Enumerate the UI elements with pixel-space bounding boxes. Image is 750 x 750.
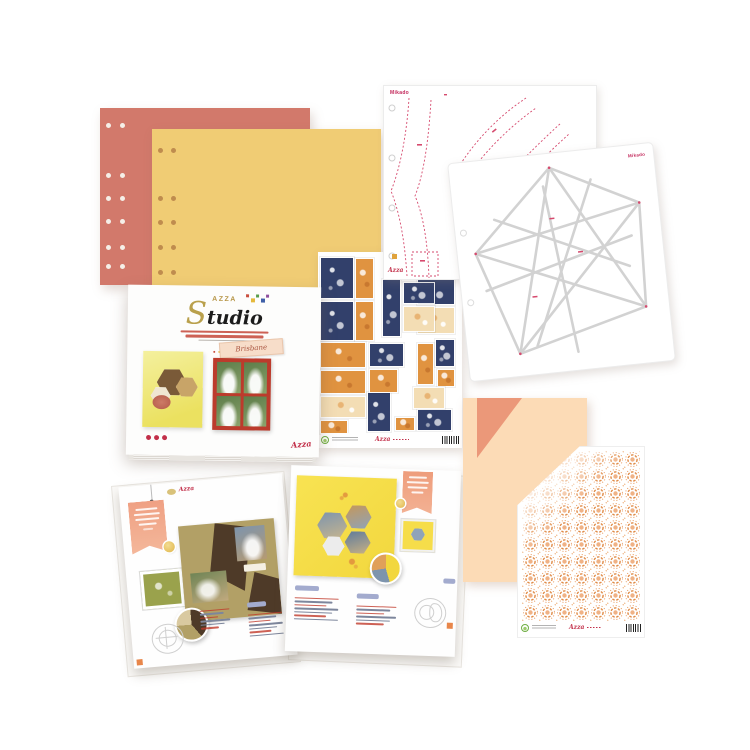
booklet-cover: AZZA Studio Brisbane Azza: [126, 285, 321, 458]
binder-hole: [158, 270, 163, 275]
list-line: [200, 612, 224, 616]
sticker: [418, 410, 451, 430]
sticker: [321, 343, 365, 367]
sticker: [368, 393, 390, 431]
page-corner-chip: [447, 623, 453, 629]
journaling-chip: [244, 563, 267, 572]
layout-photo: [190, 570, 228, 603]
page-title-script: Azza: [179, 485, 195, 493]
stencil-motif-drawing: [414, 597, 447, 628]
page-corner-chip: [136, 659, 143, 666]
photo-hexagon: [322, 536, 345, 556]
binder-hole: [106, 264, 111, 269]
list-chip: [247, 601, 266, 608]
list-line: [356, 609, 390, 612]
sticker: [321, 302, 353, 340]
cover-photo: [243, 396, 266, 426]
binder-hole: [171, 196, 176, 201]
template-sheet-web: Mikado: [447, 142, 676, 382]
list-line: [356, 605, 396, 608]
list-line: [356, 619, 390, 622]
confetti-square: [246, 294, 249, 297]
list-line: [356, 623, 384, 626]
sticker: [418, 344, 433, 384]
binder-hole: [120, 123, 125, 128]
list-chip: [295, 585, 319, 591]
sticker: [321, 421, 347, 433]
materials-list: [246, 592, 284, 637]
confetti-square: [266, 295, 269, 298]
template-1-label: Mikado: [390, 90, 409, 96]
azza-signature: Azza: [290, 438, 311, 450]
tips-banner: [402, 471, 433, 514]
cover-photo: [217, 362, 241, 393]
binder-hole: [106, 245, 111, 250]
sticker: [404, 307, 434, 331]
list-line: [294, 608, 338, 611]
binder-hole: [106, 219, 111, 224]
binder-hole: [120, 219, 125, 224]
cover-tagline: [185, 335, 263, 339]
binder-hole: [171, 270, 176, 275]
cover-photo: [216, 396, 240, 426]
list-line: [250, 632, 284, 637]
list-line: [249, 622, 283, 627]
photo-blob: [152, 395, 170, 409]
footer-red-text: [393, 439, 409, 441]
binder-hole: [120, 196, 125, 201]
binder-hole: [158, 245, 163, 250]
sticker: [414, 388, 444, 408]
cover-dot: [146, 435, 151, 440]
list-line: [356, 612, 384, 615]
binder-hole: [106, 123, 111, 128]
azza-signature: Azza: [375, 437, 390, 443]
color-dot: [213, 351, 215, 353]
binder-hole: [158, 220, 163, 225]
list-line: [294, 618, 338, 621]
barcode: [442, 436, 459, 444]
azza-signature: Azza: [569, 625, 584, 631]
materials-list: [356, 585, 397, 625]
list-line: [294, 615, 326, 618]
collection-name: Brisbane: [235, 343, 267, 353]
list-line: [201, 627, 219, 630]
list-line: [295, 597, 339, 600]
photo-hexagon: [317, 512, 348, 539]
barcode: [626, 624, 641, 632]
confetti-square: [256, 294, 259, 297]
binder-hole: [120, 245, 125, 250]
confetti-square: [251, 298, 255, 302]
sticker-sheet-footer: Azza: [321, 433, 459, 446]
cover-title: Studio: [128, 300, 321, 331]
footer-microtext: [532, 625, 556, 630]
detail-circle-inset: [369, 552, 402, 585]
binder-hole: [120, 173, 125, 178]
list-line: [294, 611, 332, 614]
scrapbooking-kit-product-photo: Azza Mikado: [0, 0, 750, 750]
footer-red-text: [587, 627, 601, 629]
booklet-right-page: [285, 465, 461, 657]
sticker: [356, 302, 373, 340]
mini-layout-thumbnail: [400, 519, 435, 552]
template-2-cutlines: [448, 143, 675, 381]
list-line: [249, 626, 277, 630]
section-marker: [392, 254, 397, 259]
photo-hexagon: [345, 505, 372, 529]
binder-hole: [171, 245, 176, 250]
confetti-square: [261, 299, 265, 303]
eco-label-icon: [321, 436, 329, 444]
cover-dot: [154, 435, 159, 440]
sticker: [370, 344, 403, 366]
sticker: [321, 397, 365, 417]
list-line: [356, 616, 396, 619]
cover-dot: [162, 435, 167, 440]
hanging-string: [150, 485, 152, 501]
binder-hole: [171, 220, 176, 225]
sticker: [438, 370, 454, 386]
footer-microtext: [332, 437, 358, 442]
list-chip: [357, 593, 379, 599]
materials-list: [199, 606, 231, 629]
azza-signature: Azza: [388, 268, 403, 274]
sticker: [356, 259, 373, 298]
list-line: [199, 608, 229, 612]
binder-hole: [158, 196, 163, 201]
binder-hole: [120, 264, 125, 269]
list-line: [295, 601, 333, 604]
list-chip: [443, 578, 455, 583]
binder-hole: [106, 173, 111, 178]
layout-photo: [234, 525, 267, 561]
sticker: [383, 280, 400, 336]
patterned-paper-footer: Azza: [521, 621, 641, 634]
intro-banner: [128, 500, 168, 555]
booklet-left-page: Azza: [118, 473, 297, 669]
binder-hole: [171, 148, 176, 153]
sticker: [321, 371, 365, 393]
sticker: [436, 340, 454, 366]
sticker: [370, 370, 397, 392]
floral-doodle: [338, 487, 353, 503]
gold-oval-icon: [167, 489, 176, 496]
list-line: [248, 612, 282, 617]
list-line: [294, 604, 326, 607]
eco-label-icon: [521, 624, 529, 632]
list-line: [248, 616, 276, 620]
photo-hexagon: [344, 531, 371, 554]
sticker: [396, 418, 414, 430]
cover-left-layout: [142, 351, 203, 428]
list-line: [201, 623, 225, 627]
cover-right-layout: [212, 358, 271, 431]
mini-layout-thumbnail: [140, 568, 185, 610]
sticker: [321, 258, 353, 298]
cover-photo: [244, 362, 267, 393]
materials-list: [294, 577, 339, 621]
binder-hole: [106, 196, 111, 201]
sticker: [404, 283, 434, 303]
sticker-sheet: Azza: [318, 252, 462, 448]
gold-badge-icon: [163, 541, 175, 553]
binder-hole: [158, 148, 163, 153]
list-line: [200, 619, 230, 623]
floral-doodle: [344, 555, 361, 572]
